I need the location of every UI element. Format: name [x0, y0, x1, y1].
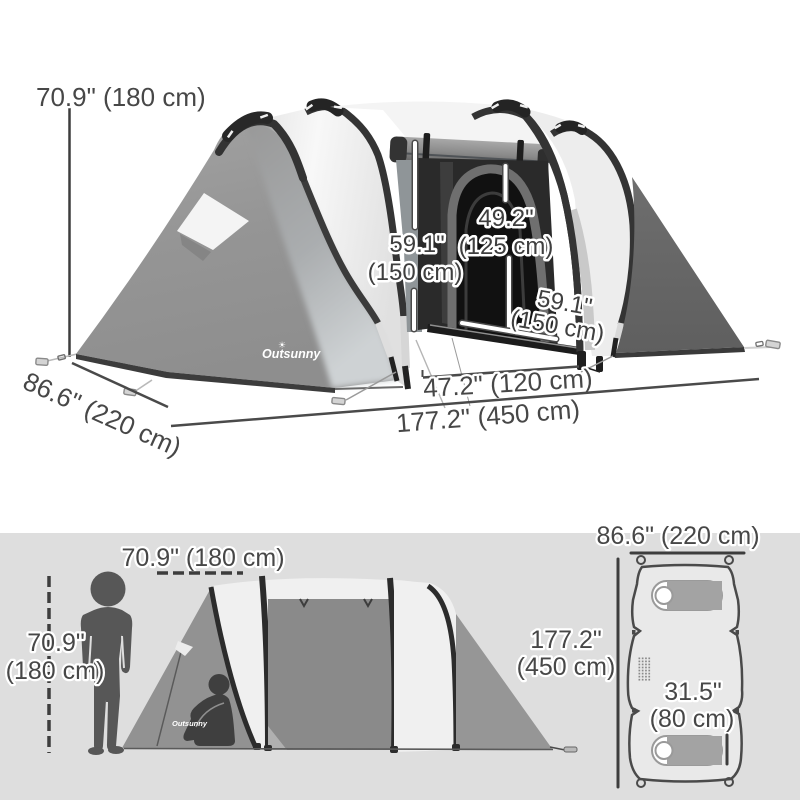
svg-text:Outsunny: Outsunny: [172, 719, 208, 728]
svg-text:Outsunny: Outsunny: [262, 347, 321, 361]
svg-text:(180 cm): (180 cm): [6, 657, 105, 685]
svg-text:70.9": 70.9": [27, 629, 85, 657]
svg-text:(450 cm): (450 cm): [517, 653, 616, 681]
svg-text:49.2": 49.2": [478, 205, 533, 232]
svg-text:70.9" (180 cm): 70.9" (180 cm): [121, 544, 284, 572]
svg-text:(125 cm): (125 cm): [459, 233, 554, 260]
svg-text:86.6" (220 cm): 86.6" (220 cm): [596, 522, 759, 550]
svg-text:(150 cm): (150 cm): [368, 259, 463, 286]
svg-text:59.1": 59.1": [389, 231, 444, 258]
svg-text:177.2": 177.2": [530, 626, 601, 654]
svg-text:☀: ☀: [278, 340, 286, 350]
svg-text:70.9" (180 cm): 70.9" (180 cm): [36, 82, 206, 112]
svg-text:31.5": 31.5": [664, 678, 722, 706]
svg-text:(80 cm): (80 cm): [650, 705, 735, 733]
